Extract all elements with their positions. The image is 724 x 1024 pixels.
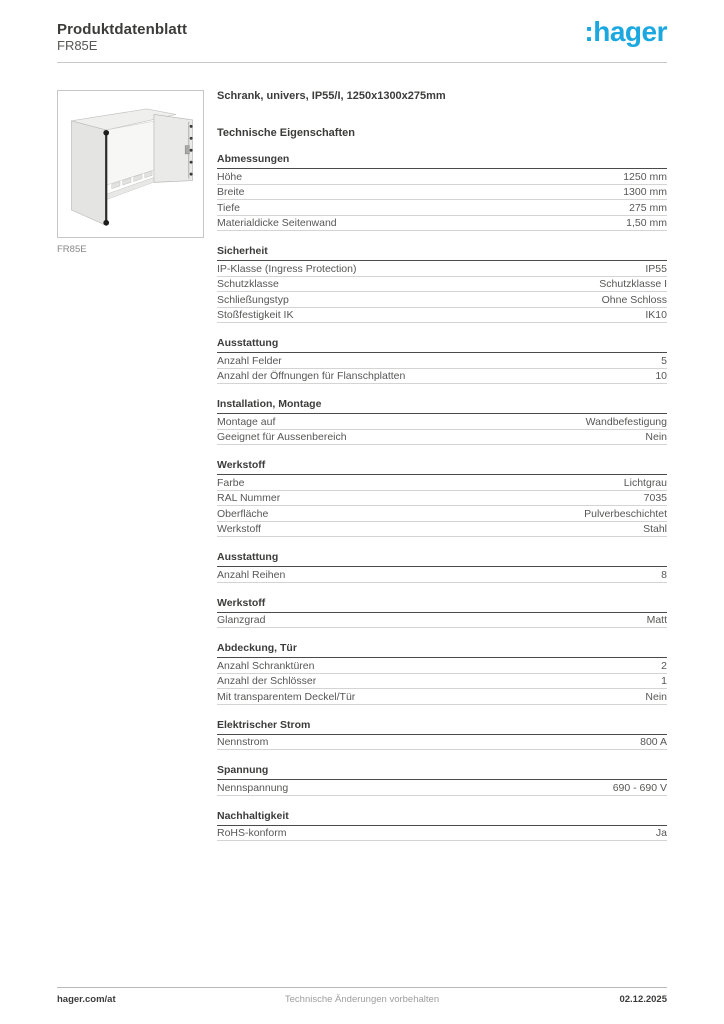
spec-row: SchutzklasseSchutzklasse I (217, 277, 667, 293)
spec-row: Anzahl Schranktüren2 (217, 658, 667, 674)
spec-value: 1300 mm (623, 187, 667, 198)
spec-value: Wandbefestigung (586, 417, 667, 428)
spec-value: IP55 (645, 264, 667, 275)
spec-section: SicherheitIP-Klasse (Ingress Protection)… (217, 246, 667, 323)
spec-section: WerkstoffGlanzgradMatt (217, 598, 667, 629)
spec-row: FarbeLichtgrau (217, 475, 667, 491)
spec-label: Mit transparentem Deckel/Tür (217, 692, 355, 703)
document-title: Produktdatenblatt (57, 21, 187, 38)
spec-label: Breite (217, 187, 244, 198)
spec-label: Farbe (217, 478, 244, 489)
spec-label: Oberfläche (217, 509, 268, 520)
datasheet-page: Produktdatenblatt FR85E :hager (0, 0, 724, 1024)
spec-label: Schutzklasse (217, 279, 279, 290)
spec-section: Elektrischer StromNennstrom800 A (217, 720, 667, 751)
spec-value: Nein (645, 432, 667, 443)
spec-row: Nennspannung690 - 690 V (217, 780, 667, 796)
spec-value: 275 mm (629, 203, 667, 214)
spec-value: IK10 (645, 310, 667, 321)
spec-section: Installation, MontageMontage aufWandbefe… (217, 399, 667, 445)
spec-label: Anzahl der Schlösser (217, 676, 316, 687)
product-image-caption: FR85E (57, 244, 204, 255)
spec-label: Tiefe (217, 203, 240, 214)
spec-label: Schließungstyp (217, 295, 289, 306)
spec-label: Materialdicke Seitenwand (217, 218, 337, 229)
spec-label: Anzahl Reihen (217, 570, 285, 581)
spec-section: AbmessungenHöhe1250 mmBreite1300 mmTiefe… (217, 154, 667, 231)
spec-label: Nennspannung (217, 783, 288, 794)
spec-section-title: Installation, Montage (217, 399, 667, 414)
spec-section-title: Ausstattung (217, 552, 667, 567)
spec-row: RAL Nummer7035 (217, 491, 667, 507)
spec-value: Ohne Schloss (602, 295, 667, 306)
spec-section-title: Abmessungen (217, 154, 667, 169)
page-header: Produktdatenblatt FR85E :hager (57, 0, 667, 63)
product-image-column: FR85E (57, 90, 204, 255)
spec-value: Pulverbeschichtet (584, 509, 667, 520)
spec-row: Materialdicke Seitenwand1,50 mm (217, 216, 667, 232)
spec-row: Tiefe275 mm (217, 200, 667, 216)
footer-disclaimer: Technische Änderungen vorbehalten (57, 994, 667, 1005)
spec-row: Stoßfestigkeit IKIK10 (217, 308, 667, 324)
spec-label: Anzahl Felder (217, 356, 282, 367)
spec-row: GlanzgradMatt (217, 613, 667, 629)
spec-value: 8 (661, 570, 667, 581)
product-image-cabinet (64, 97, 198, 231)
spec-value: 690 - 690 V (613, 783, 667, 794)
spec-label: RoHS-konform (217, 828, 286, 839)
spec-row: Anzahl Reihen8 (217, 567, 667, 583)
spec-value: 10 (655, 371, 667, 382)
spec-section: SpannungNennspannung690 - 690 V (217, 765, 667, 796)
spec-value: 5 (661, 356, 667, 367)
spec-label: Glanzgrad (217, 615, 265, 626)
spec-label: Geeignet für Aussenbereich (217, 432, 347, 443)
spec-row: SchließungstypOhne Schloss (217, 292, 667, 308)
spec-row: OberflächePulverbeschichtet (217, 506, 667, 522)
spec-row: Mit transparentem Deckel/TürNein (217, 689, 667, 705)
spec-label: RAL Nummer (217, 493, 280, 504)
spec-value: Stahl (643, 524, 667, 535)
spec-section: AusstattungAnzahl Reihen8 (217, 552, 667, 583)
spec-section-title: Sicherheit (217, 246, 667, 261)
spec-sections: AbmessungenHöhe1250 mmBreite1300 mmTiefe… (217, 154, 667, 841)
spec-value: 2 (661, 661, 667, 672)
spec-section-title: Werkstoff (217, 460, 667, 475)
spec-row: Anzahl Felder5 (217, 353, 667, 369)
spec-value: 1 (661, 676, 667, 687)
spec-value: 1,50 mm (626, 218, 667, 229)
spec-section: WerkstoffFarbeLichtgrauRAL Nummer7035Obe… (217, 460, 667, 537)
spec-value: Lichtgrau (624, 478, 667, 489)
spec-row: RoHS-konformJa (217, 826, 667, 842)
page-footer: hager.com/at Technische Änderungen vorbe… (57, 987, 667, 1005)
product-image-frame (57, 90, 204, 238)
spec-section-title: Elektrischer Strom (217, 720, 667, 735)
spec-row: Anzahl der Öffnungen für Flanschplatten1… (217, 369, 667, 385)
spec-label: IP-Klasse (Ingress Protection) (217, 264, 356, 275)
spec-value: Ja (656, 828, 667, 839)
spec-value: Matt (647, 615, 667, 626)
spec-section: NachhaltigkeitRoHS-konformJa (217, 811, 667, 842)
spec-section-title: Ausstattung (217, 338, 667, 353)
spec-row: Höhe1250 mm (217, 169, 667, 185)
spec-label: Anzahl der Öffnungen für Flanschplatten (217, 371, 405, 382)
header-title-block: Produktdatenblatt FR85E (57, 0, 187, 53)
document-subtitle: FR85E (57, 38, 187, 53)
tech-properties-heading: Technische Eigenschaften (217, 127, 667, 140)
spec-label: Höhe (217, 172, 242, 183)
spec-value: 1250 mm (623, 172, 667, 183)
spec-value: Schutzklasse I (599, 279, 667, 290)
spec-section: Abdeckung, TürAnzahl Schranktüren2Anzahl… (217, 643, 667, 705)
product-title: Schrank, univers, IP55/I, 1250x1300x275m… (217, 90, 667, 103)
spec-row: Breite1300 mm (217, 185, 667, 201)
spec-section-title: Spannung (217, 765, 667, 780)
spec-section-title: Abdeckung, Tür (217, 643, 667, 658)
spec-section-title: Nachhaltigkeit (217, 811, 667, 826)
spec-label: Anzahl Schranktüren (217, 661, 314, 672)
spec-row: WerkstoffStahl (217, 522, 667, 538)
spec-section: AusstattungAnzahl Felder5Anzahl der Öffn… (217, 338, 667, 384)
spec-row: Anzahl der Schlösser1 (217, 674, 667, 690)
spec-label: Werkstoff (217, 524, 261, 535)
spec-label: Montage auf (217, 417, 275, 428)
spec-row: Nennstrom800 A (217, 735, 667, 751)
spec-value: Nein (645, 692, 667, 703)
spec-section-title: Werkstoff (217, 598, 667, 613)
spec-row: Montage aufWandbefestigung (217, 414, 667, 430)
spec-value: 800 A (640, 737, 667, 748)
spec-row: IP-Klasse (Ingress Protection)IP55 (217, 261, 667, 277)
specs-column: Schrank, univers, IP55/I, 1250x1300x275m… (217, 90, 667, 841)
spec-row: Geeignet für AussenbereichNein (217, 430, 667, 446)
spec-label: Stoßfestigkeit IK (217, 310, 293, 321)
spec-value: 7035 (644, 493, 667, 504)
hager-logo: :hager (584, 0, 667, 47)
spec-label: Nennstrom (217, 737, 268, 748)
